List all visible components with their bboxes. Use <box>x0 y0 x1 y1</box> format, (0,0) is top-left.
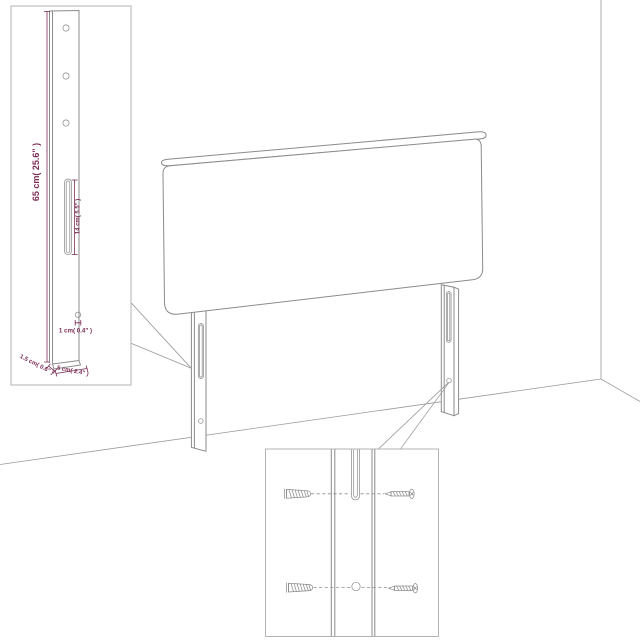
dim-hole-label: 1 cm( 0.4" ) <box>59 328 92 335</box>
diagram-canvas: 65 cm( 25.6" ) 14 cm( 5.5" ) 1 cm( 0.4" … <box>0 0 640 640</box>
headboard-assembly-diagram: 65 cm( 25.6" ) 14 cm( 5.5" ) 1 cm( 0.4" … <box>0 0 640 640</box>
right-leg <box>441 285 458 416</box>
callout-line-mount-right <box>401 383 449 449</box>
mounting-detail-inset <box>266 449 439 637</box>
callout-lines <box>131 303 449 449</box>
floor-line-right <box>601 379 640 402</box>
dim-slot-label: 14 cm( 5.5" ) <box>76 199 82 235</box>
callout-line-mount-left <box>379 383 449 449</box>
dim-height-label: 65 cm( 25.6" ) <box>31 143 41 201</box>
headboard <box>161 132 486 314</box>
mounting-inset-frame <box>266 449 439 637</box>
post-detail-inset: 65 cm( 25.6" ) 14 cm( 5.5" ) 1 cm( 0.4" … <box>11 6 131 385</box>
left-leg <box>191 311 206 451</box>
callout-line-post-bottom <box>131 343 191 368</box>
headboard-panel <box>163 139 483 314</box>
